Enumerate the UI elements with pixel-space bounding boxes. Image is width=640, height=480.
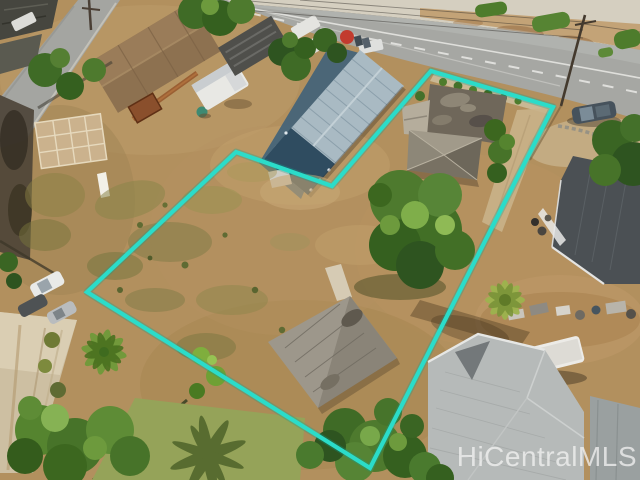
aerial-photo: HiCentralMLS — [0, 0, 640, 480]
red-object — [340, 30, 354, 44]
concrete-pad — [35, 114, 107, 169]
aerial-scene — [0, 0, 640, 480]
watermark: HiCentralMLS — [457, 435, 637, 480]
palm-tree-right — [485, 280, 525, 320]
